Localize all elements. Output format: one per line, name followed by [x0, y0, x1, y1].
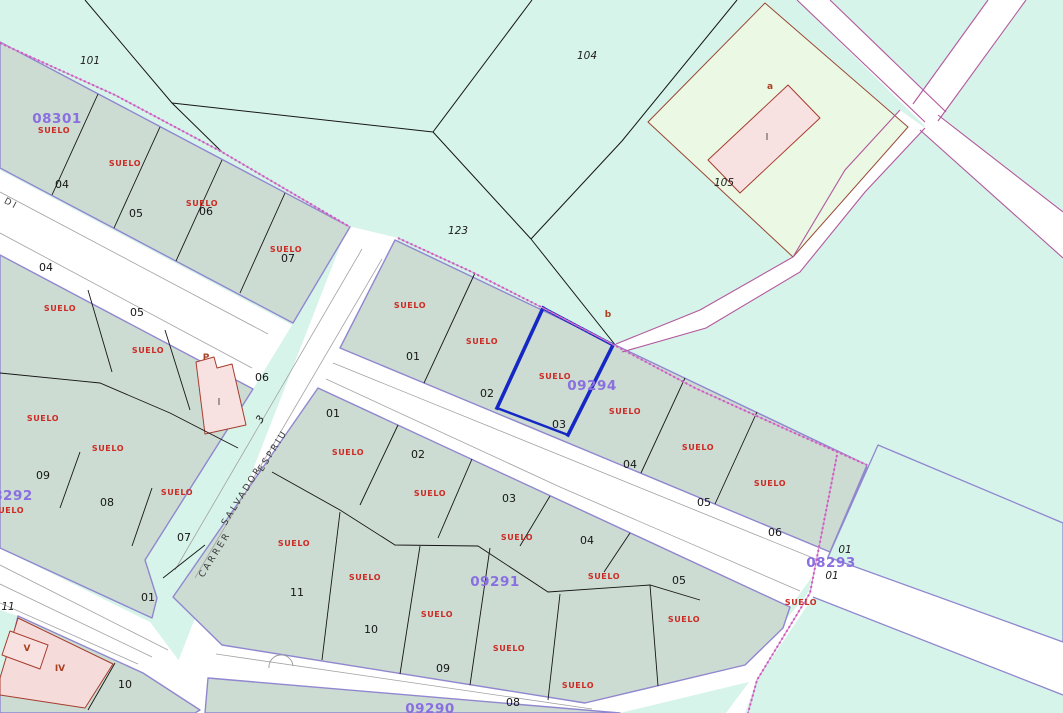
suelo-08292-09: SUELO — [27, 414, 59, 423]
building-roman-V: V — [24, 644, 31, 654]
suelo-09291-07: SUELO — [562, 681, 594, 690]
block-number-09294: 09294 — [567, 378, 616, 394]
rustic-101: 101 — [80, 55, 100, 67]
parcel-08301-06: 06 — [199, 205, 213, 218]
suelo-09291-05: SUELO — [668, 615, 700, 624]
suelo-09291-08: SUELO — [493, 644, 525, 653]
parcel-08292-05: 05 — [130, 306, 144, 319]
parcel-09291-01: 01 — [326, 407, 340, 420]
suelo-08292-04: SUELO — [44, 304, 76, 313]
parcel-09294-01: 01 — [406, 350, 420, 363]
rustic-105: 105 — [714, 177, 734, 189]
suelo-09294-02: SUELO — [466, 337, 498, 346]
suelo-09294-04: SUELO — [609, 407, 641, 416]
suelo-08293: SUELO — [785, 598, 817, 607]
suelo-09294-01: SUELO — [394, 301, 426, 310]
block-number-08292: 08292 — [0, 488, 33, 504]
block-number-09290: 09290 — [405, 701, 454, 713]
parcel-08292-01: 01 — [141, 591, 155, 604]
parcel-08292-08: 08 — [100, 496, 114, 509]
parcel-08301-05: 05 — [129, 207, 143, 220]
parcel-09294-03: 03 — [552, 418, 566, 431]
parcel-09291-05: 05 — [672, 574, 686, 587]
rustic-08293-01-lower: 01 — [825, 570, 838, 582]
suelo-08292-05: SUELO — [132, 346, 164, 355]
suelo-08301-05: SUELO — [109, 159, 141, 168]
parcel-08301-04: 04 — [55, 178, 69, 191]
parcel-09294-04: 04 — [623, 458, 637, 471]
parcel-09291-08: 08 — [506, 696, 520, 709]
building-roman-I-08292: I — [218, 397, 221, 408]
parcel-09291-04: 04 — [580, 534, 594, 547]
suelo-08301-main: SUELO — [38, 126, 70, 135]
annotation-P: P — [203, 353, 210, 363]
parcel-09294-06: 06 — [768, 526, 782, 539]
parcel-09291-03: 03 — [502, 492, 516, 505]
parcel-09291-10: 10 — [364, 623, 378, 636]
block-number-08301: 08301 — [32, 111, 81, 127]
annotation-a: a — [767, 82, 773, 92]
rustic-104: 104 — [577, 50, 597, 62]
suelo-09291-03: SUELO — [501, 533, 533, 542]
parcel-09291-02: 02 — [411, 448, 425, 461]
building-roman-IV: IV — [55, 664, 65, 674]
block-number-09291: 09291 — [470, 574, 519, 590]
block-number-08293: 08293 — [806, 555, 855, 571]
suelo-09291-11: SUELO — [278, 539, 310, 548]
parcel-08301-07: 07 — [281, 252, 295, 265]
parcel-09294-05: 05 — [697, 496, 711, 509]
rustic-11: 11 — [1, 601, 14, 613]
building-roman-I-105: I — [766, 132, 769, 143]
parcel-08292-06: 06 — [255, 371, 269, 384]
suelo-08292-edge: SUELO — [0, 506, 24, 515]
rustic-123: 123 — [448, 225, 468, 237]
parcel-08292-07: 07 — [177, 531, 191, 544]
annotation-b: b — [605, 310, 612, 320]
parcel-08292-04: 04 — [39, 261, 53, 274]
suelo-08292-07: SUELO — [161, 488, 193, 497]
suelo-09294-05: SUELO — [682, 443, 714, 452]
parcel-08292-09: 09 — [36, 469, 50, 482]
suelo-09291-10: SUELO — [349, 573, 381, 582]
suelo-09291-02: SUELO — [414, 489, 446, 498]
suelo-09294-06: SUELO — [754, 479, 786, 488]
parcel-bottom-10: 10 — [118, 678, 132, 691]
suelo-09291-01: SUELO — [332, 448, 364, 457]
suelo-09291-04: SUELO — [588, 572, 620, 581]
parcel-09291-09: 09 — [436, 662, 450, 675]
parcel-09291-11: 11 — [290, 586, 304, 599]
parcel-09294-02: 02 — [480, 387, 494, 400]
suelo-08292-08: SUELO — [92, 444, 124, 453]
cadastral-map-canvas[interactable]: 08301SUELOSUELO0405SUELO06SUELO071011041… — [0, 0, 1063, 713]
cadastral-map-viewport[interactable]: 08301SUELOSUELO0405SUELO06SUELO071011041… — [0, 0, 1063, 713]
suelo-09291-09: SUELO — [421, 610, 453, 619]
